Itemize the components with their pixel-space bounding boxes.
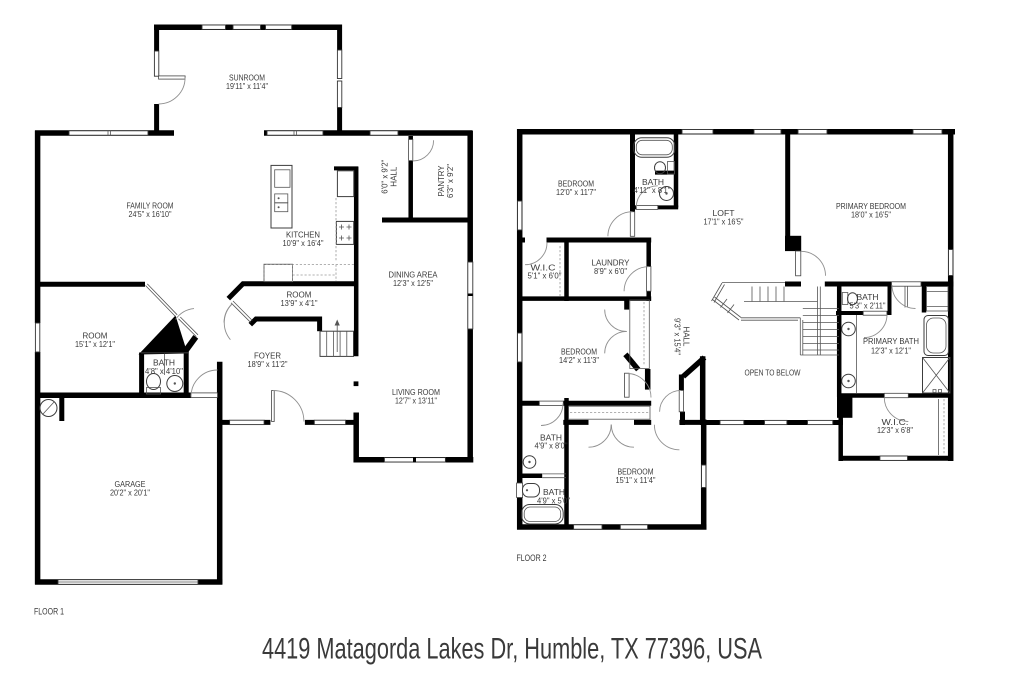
svg-text:4'9" x 5'0": 4'9" x 5'0" [537, 497, 570, 506]
svg-text:SUNROOM: SUNROOM [229, 73, 265, 83]
svg-text:13'9" x 4'1": 13'9" x 4'1" [281, 299, 318, 308]
svg-text:4'11" x 8'1": 4'11" x 8'1" [634, 186, 671, 195]
svg-text:12'3" x 12'5": 12'3" x 12'5" [393, 279, 433, 288]
svg-text:12'3" x 12'1": 12'3" x 12'1" [871, 347, 911, 356]
svg-text:4'8" x 4'10": 4'8" x 4'10" [145, 367, 183, 376]
svg-text:GARAGE: GARAGE [115, 479, 146, 489]
svg-text:ROOM: ROOM [83, 331, 108, 341]
svg-text:12'3" x 6'8": 12'3" x 6'8" [877, 426, 913, 435]
svg-text:PANTRY: PANTRY [436, 165, 446, 196]
svg-text:BATH: BATH [543, 487, 565, 497]
svg-text:LIVING ROOM: LIVING ROOM [392, 387, 440, 397]
svg-text:BATH: BATH [153, 358, 175, 368]
svg-text:FLOOR 2: FLOOR 2 [517, 553, 547, 564]
svg-text:18'0" x 16'5": 18'0" x 16'5" [851, 211, 891, 220]
svg-text:9'3" x 15'4": 9'3" x 15'4" [673, 318, 682, 355]
svg-text:15'1" x 12'1": 15'1" x 12'1" [75, 340, 115, 349]
svg-text:BEDROOM: BEDROOM [558, 179, 594, 189]
svg-text:4'9" x 8'0": 4'9" x 8'0" [535, 442, 568, 451]
svg-text:20'2" x 20'1": 20'2" x 20'1" [110, 489, 150, 498]
svg-text:18'9" x 11'2": 18'9" x 11'2" [248, 360, 288, 369]
svg-text:5'3" x 2'11": 5'3" x 2'11" [850, 302, 886, 311]
svg-text:PRIMARY BATH: PRIMARY BATH [863, 336, 919, 346]
svg-text:14'2" x 11'3": 14'2" x 11'3" [559, 356, 599, 365]
svg-text:12'0" x 11'7": 12'0" x 11'7" [556, 188, 596, 197]
svg-text:ROOM: ROOM [287, 290, 312, 300]
svg-text:24'5" x 16'10": 24'5" x 16'10" [129, 210, 172, 219]
svg-text:LAUNDRY: LAUNDRY [592, 258, 630, 268]
svg-text:12'7" x 13'11": 12'7" x 13'11" [395, 397, 437, 406]
svg-text:6'3" x 9'2": 6'3" x 9'2" [446, 164, 455, 198]
svg-text:17'1" x 16'5": 17'1" x 16'5" [704, 218, 744, 227]
svg-text:LOFT: LOFT [713, 208, 736, 218]
svg-text:8'9" x 6'0": 8'9" x 6'0" [594, 267, 627, 276]
svg-text:BEDROOM: BEDROOM [618, 467, 654, 477]
svg-text:FLOOR 1: FLOOR 1 [34, 607, 64, 618]
svg-text:10'9" x 16'4": 10'9" x 16'4" [283, 239, 324, 248]
svg-text:19'11" x 11'4": 19'11" x 11'4" [226, 82, 268, 91]
svg-text:BEDROOM: BEDROOM [561, 347, 597, 357]
svg-text:BATH: BATH [857, 292, 879, 302]
svg-text:4419 Matagorda Lakes Dr, Humbl: 4419 Matagorda Lakes Dr, Humble, TX 7739… [262, 633, 762, 666]
svg-text:DINING AREA: DINING AREA [389, 270, 438, 280]
svg-text:OPEN TO BELOW: OPEN TO BELOW [745, 368, 802, 378]
svg-text:PRIMARY BEDROOM: PRIMARY BEDROOM [836, 201, 906, 211]
svg-text:15'1" x 11'4": 15'1" x 11'4" [616, 476, 656, 485]
svg-text:HALL: HALL [682, 327, 692, 347]
svg-text:HALL: HALL [389, 166, 399, 186]
svg-text:KITCHEN: KITCHEN [286, 230, 320, 240]
svg-text:5'1" x 6'0": 5'1" x 6'0" [528, 272, 562, 281]
svg-text:FOYER: FOYER [254, 351, 281, 361]
svg-text:FAMILY ROOM: FAMILY ROOM [127, 201, 174, 211]
